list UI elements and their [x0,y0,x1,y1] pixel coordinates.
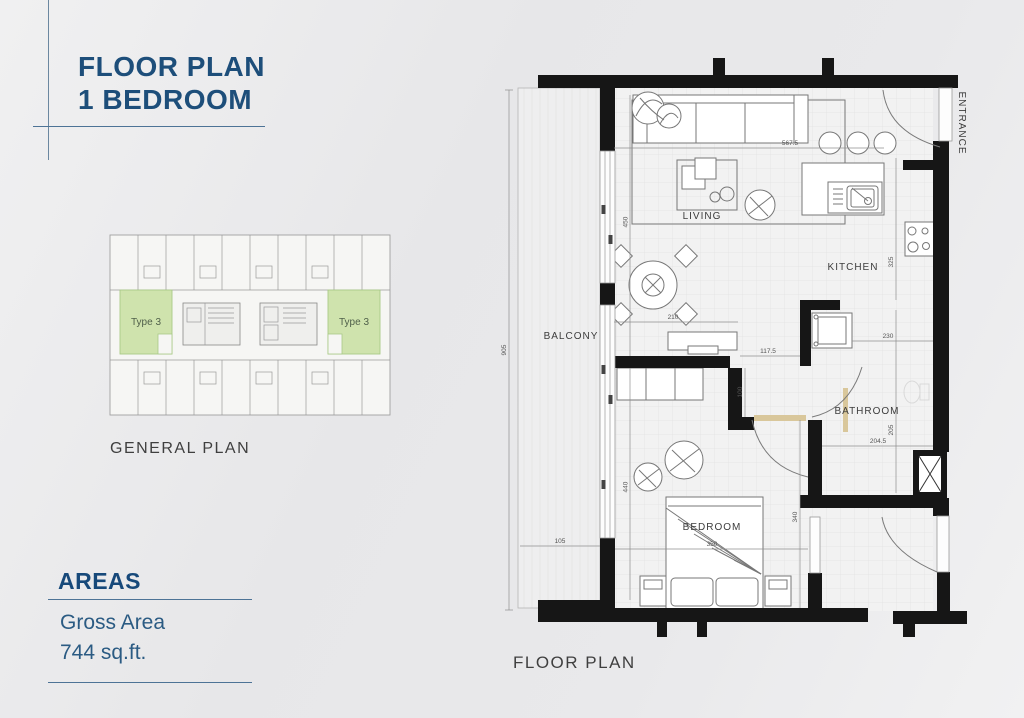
bed [666,497,763,611]
room-label-balcony: BALCONY [544,331,599,342]
floor-plan-figure: 905 450 440 567.5 210 117.5 100 230 325 … [495,50,1024,680]
bedroom-chair-small [634,463,662,491]
page-title-line1: FLOOR PLAN [78,50,265,83]
dim-hall-width: 230 [883,333,894,340]
areas-heading: AREAS [58,568,141,595]
dim-bedroom-zone-depth: 440 [623,481,630,492]
corridor-door-sill [937,516,949,572]
page-title-line2: 1 BEDROOM [78,83,265,116]
entrance-door-sill [939,88,952,141]
shaft [913,450,947,498]
floor-plan-caption: FLOOR PLAN [513,653,636,673]
kitchen-counter [802,163,884,215]
bar-stools [819,132,896,154]
room-label-living: LIVING [683,211,722,222]
room-label-entrance: ENTRANCE [956,91,967,154]
core-elevators [260,303,317,345]
hob [905,222,934,256]
dim-overall-height: 905 [501,344,508,355]
dim-opening-width: 117.5 [760,348,776,355]
nightstand-right [765,576,791,606]
dim-balcony-width: 105 [555,538,566,545]
room-label-bathroom: BATHROOM [834,406,899,417]
general-plan-figure: Type 3 Type 3 [108,224,392,430]
bedroom-chair-large [665,441,703,479]
areas-rule-bottom [48,682,252,683]
brand-vertical-line [48,0,49,160]
armchair [745,190,775,220]
core-stairs [183,303,240,345]
dim-dining-width: 210 [668,314,679,321]
page-background: { "title": {"line1": "FLOOR PLAN", "line… [0,0,1024,718]
brand-horizontal-line [33,126,265,127]
bedroom-window-sill [810,517,820,573]
page-title: FLOOR PLAN 1 BEDROOM [78,50,265,116]
gross-area-block: Gross Area 744 sq.ft. [60,608,165,669]
unit-label-left: Type 3 [131,317,161,328]
bedroom-door-leaf [754,415,806,421]
gross-area-label: Gross Area [60,608,165,638]
room-label-bedroom: BEDROOM [683,522,742,533]
dim-bathroom-depth: 205 [888,424,895,435]
areas-rule-top [48,599,252,600]
washing-machine [812,313,852,348]
dim-kitchen-depth: 325 [888,256,895,267]
gross-area-value: 744 sq.ft. [60,638,165,668]
nightstand-left [640,576,666,606]
dim-bedroom-depth: 340 [792,511,799,522]
dim-bathroom-width: 204.5 [870,438,887,445]
dim-doorway-width: 100 [737,386,744,397]
room-label-kitchen: KITCHEN [828,262,879,273]
sliding-doors [600,151,615,538]
dim-bedroom-width: 350 [707,541,718,548]
general-plan-caption: GENERAL PLAN [110,440,250,458]
unit-label-right: Type 3 [339,317,369,328]
dim-living-width: 567.5 [782,140,799,147]
dim-living-depth: 450 [623,216,630,227]
